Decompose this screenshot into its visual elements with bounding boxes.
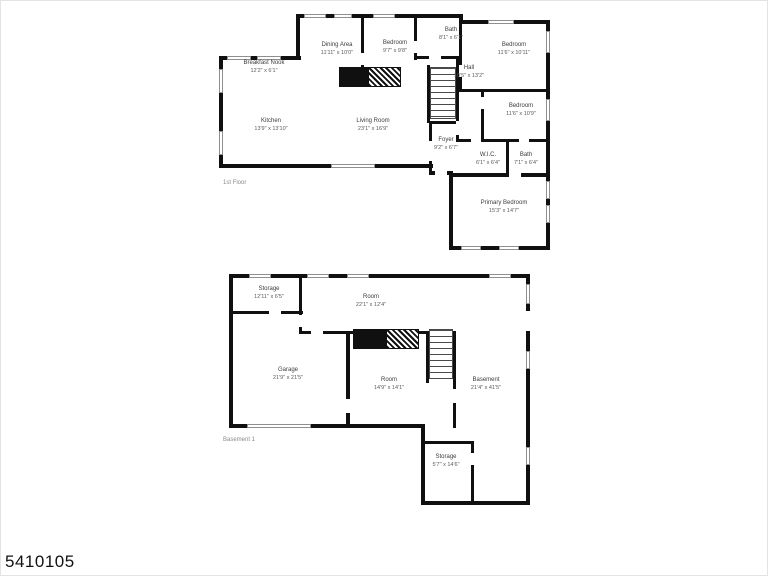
room-label: Dining Area11'11" x 10'0" [321, 42, 353, 56]
wall [421, 441, 474, 444]
wall [471, 441, 474, 505]
door-opening [269, 311, 281, 314]
room-name: Storage [258, 286, 279, 294]
window-marker [546, 31, 550, 53]
wall [459, 89, 550, 92]
room-dims: 11'11" x 10'0" [321, 49, 353, 56]
door-opening [509, 173, 521, 177]
room-dims: 9'7" x 9'8" [383, 47, 407, 54]
room-name: Hall [464, 65, 474, 73]
room-label: Bedroom9'7" x 9'8" [383, 40, 407, 54]
hatched-block [386, 329, 419, 349]
room-name: Dining Area [321, 42, 352, 50]
room-label: Bedroom11'6" x 10'9" [506, 103, 536, 117]
window-marker [373, 14, 395, 18]
room-label: Bath8'1" x 6'1" [439, 27, 463, 41]
room-dims: 21'9" x 21'5" [273, 374, 303, 381]
window-marker [546, 181, 550, 199]
door-opening [311, 331, 323, 334]
window-marker [307, 274, 329, 278]
room-dims: 21'4" x 41'5" [471, 384, 501, 391]
wall [453, 331, 456, 428]
wall [296, 14, 300, 60]
room-label: Room14'9" x 14'1" [374, 377, 404, 391]
room-name: Bedroom [383, 40, 407, 48]
door-opening [519, 139, 529, 142]
window-marker [546, 205, 550, 223]
door-opening [429, 141, 432, 161]
room-dims: 12'11" x 6'5" [254, 293, 284, 300]
wall [526, 274, 530, 505]
room-dims: 7'1" x 6'4" [514, 159, 538, 166]
wall [219, 164, 433, 168]
window-marker [219, 131, 223, 155]
room-dims: 11'6" x 10'11" [498, 49, 530, 56]
room-label: Foyer9'2" x 6'7" [434, 137, 458, 151]
floor-title: 1st Floor [223, 180, 246, 186]
window-marker [304, 14, 326, 18]
garage-door-marker [247, 424, 311, 428]
room-label: Living Room23'1" x 16'9" [356, 118, 389, 132]
room-dims: 12'2" x 6'1" [250, 67, 277, 74]
staircase [430, 67, 456, 119]
room-dims: 5'7" x 14'6" [432, 461, 459, 468]
door-opening [453, 389, 456, 403]
room-label: Basement21'4" x 41'5" [471, 377, 501, 391]
window-marker [526, 351, 530, 369]
room-label: Room22'1" x 12'4" [356, 294, 386, 308]
window-marker [219, 69, 223, 93]
listing-id: 5410105 [5, 552, 75, 572]
room-name: W.I.C. [480, 152, 496, 160]
wall [421, 501, 530, 505]
room-name: Bedroom [509, 103, 533, 111]
room-name: Bath [520, 152, 532, 160]
room-label: Storage12'11" x 6'5" [254, 286, 284, 300]
window-marker [489, 274, 511, 278]
room-dims: 10'5" x 13'2" [454, 72, 484, 79]
door-opening [481, 97, 484, 109]
door-opening [435, 171, 447, 175]
room-name: Foyer [438, 137, 453, 145]
wall [229, 311, 303, 314]
wall [449, 173, 550, 177]
window-marker [334, 14, 352, 18]
window-marker [499, 246, 519, 250]
window-marker [488, 20, 514, 24]
room-name: Kitchen [261, 118, 281, 126]
room-name: Bedroom [502, 42, 526, 50]
wall [346, 331, 350, 428]
door-opening [456, 121, 459, 135]
room-dims: 14'9" x 14'1" [374, 384, 404, 391]
room-dims: 11'6" x 10'9" [506, 110, 536, 117]
wall [506, 139, 509, 176]
room-label: Primary Bedroom15'3" x 14'7" [481, 200, 528, 214]
room-dims: 15'3" x 14'7" [489, 207, 519, 214]
sliding-door-marker [331, 164, 375, 168]
door-opening [414, 41, 417, 53]
door-opening [526, 311, 530, 331]
hatched-block [368, 67, 401, 87]
room-label: Breakfast Nook12'2" x 6'1" [243, 60, 284, 74]
room-label: Bedroom11'6" x 10'11" [498, 42, 530, 56]
fireplace-block [353, 329, 386, 349]
room-label: Garage21'9" x 21'5" [273, 367, 303, 381]
door-opening [471, 453, 474, 465]
room-name: Basement [472, 377, 499, 385]
window-marker [249, 274, 271, 278]
room-label: W.I.C.6'1" x 6'4" [476, 152, 500, 166]
room-dims: 6'1" x 6'4" [476, 159, 500, 166]
room-name: Breakfast Nook [243, 60, 284, 68]
room-label: Bath7'1" x 6'4" [514, 152, 538, 166]
window-marker [546, 99, 550, 121]
door-opening [361, 53, 364, 65]
window-marker [526, 284, 530, 304]
room-name: Storage [435, 454, 456, 462]
window-marker [347, 274, 369, 278]
wall [421, 424, 425, 505]
room-label: Storage5'7" x 14'6" [432, 454, 459, 468]
wall [229, 274, 530, 278]
door-opening [471, 139, 481, 142]
wall [449, 173, 453, 250]
door-opening [429, 56, 441, 59]
room-dims: 22'1" x 12'4" [356, 301, 386, 308]
room-name: Living Room [356, 118, 389, 126]
room-label: Hall10'5" x 13'2" [454, 65, 484, 79]
wall [229, 274, 233, 428]
room-name: Bath [445, 27, 457, 35]
window-marker [461, 246, 481, 250]
window-marker [526, 447, 530, 465]
floorplan-canvas: Breakfast Nook12'2" x 6'1" Dining Area11… [0, 0, 768, 576]
wall [429, 121, 459, 124]
room-name: Primary Bedroom [481, 200, 528, 208]
staircase [429, 329, 453, 379]
wall [414, 14, 417, 60]
fireplace-block [339, 67, 368, 87]
room-dims: 9'2" x 6'7" [434, 144, 458, 151]
door-opening [346, 399, 350, 413]
door-opening [299, 315, 302, 327]
room-dims: 23'1" x 16'9" [358, 125, 388, 132]
floor-title: Basement 1 [223, 437, 255, 443]
room-name: Room [363, 294, 379, 302]
room-dims: 13'9" x 13'10" [254, 125, 287, 132]
room-name: Room [381, 377, 397, 385]
room-dims: 8'1" x 6'1" [439, 34, 463, 41]
room-name: Garage [278, 367, 298, 375]
room-label: Kitchen13'9" x 13'10" [254, 118, 287, 132]
